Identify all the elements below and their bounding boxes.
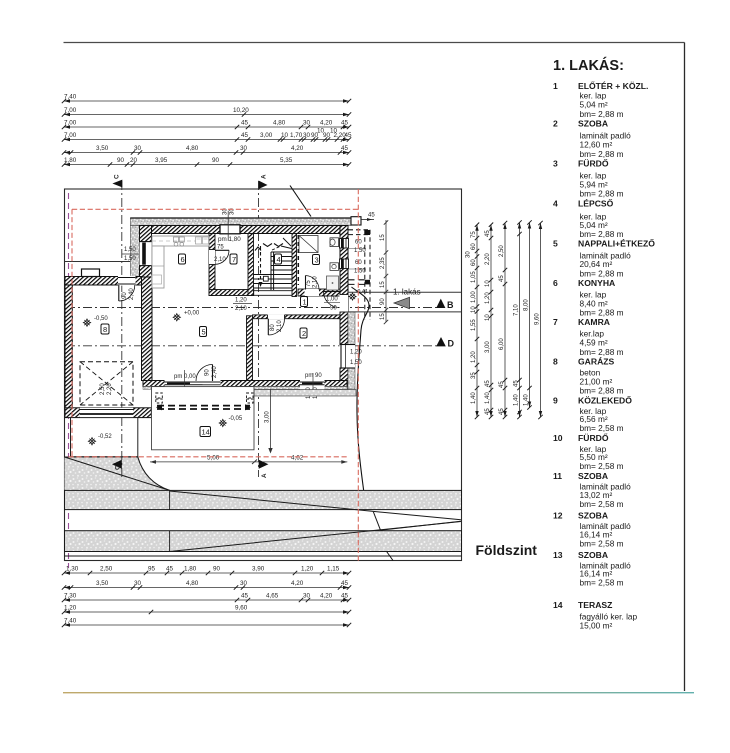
svg-text:2,10: 2,10 (214, 257, 226, 263)
svg-text:bm= 2,88 m: bm= 2,88 m (580, 109, 624, 119)
svg-text:60: 60 (471, 259, 477, 266)
svg-text:4,20: 4,20 (291, 580, 304, 587)
svg-text:1,40: 1,40 (514, 394, 520, 406)
svg-text:1,40: 1,40 (485, 392, 491, 404)
svg-text:9,60: 9,60 (235, 605, 248, 612)
svg-text:1,15: 1,15 (327, 566, 340, 573)
svg-text:4,65: 4,65 (266, 593, 279, 600)
svg-text:6: 6 (181, 255, 185, 264)
svg-text:8: 8 (553, 357, 558, 367)
svg-text:90: 90 (213, 566, 221, 573)
svg-text:90: 90 (330, 306, 337, 312)
svg-text:2,35: 2,35 (380, 257, 386, 269)
svg-text:A: A (261, 174, 268, 179)
svg-text:3: 3 (553, 159, 558, 169)
svg-text:bm= 2,88 m: bm= 2,88 m (580, 189, 624, 199)
svg-text:3,50: 3,50 (96, 145, 109, 152)
svg-text:6: 6 (553, 278, 558, 288)
svg-text:4: 4 (277, 255, 281, 264)
svg-text:2,40: 2,40 (129, 288, 135, 300)
svg-text:15,00 m²: 15,00 m² (580, 621, 613, 631)
svg-text:3: 3 (315, 256, 319, 265)
svg-text:1. LAKÁS:: 1. LAKÁS: (553, 57, 624, 74)
svg-text:45: 45 (485, 230, 491, 237)
svg-text:2,10: 2,10 (277, 320, 283, 332)
svg-text:-0,52: -0,52 (98, 434, 112, 440)
svg-text:9,60: 9,60 (535, 313, 541, 325)
svg-text:5: 5 (553, 239, 558, 249)
svg-text:C: C (115, 465, 122, 470)
svg-text:20: 20 (130, 157, 138, 164)
svg-text:3,95: 3,95 (155, 157, 168, 164)
svg-text:4,62: 4,62 (291, 455, 304, 462)
svg-text:60: 60 (471, 243, 477, 250)
svg-text:10: 10 (553, 433, 563, 443)
svg-text:LÉPCSŐ: LÉPCSŐ (578, 198, 614, 209)
svg-text:15: 15 (380, 313, 386, 320)
svg-text:4,80: 4,80 (186, 580, 199, 587)
svg-text:30: 30 (240, 580, 248, 587)
svg-text:bm= 2,88 m: bm= 2,88 m (580, 229, 624, 239)
svg-text:GARÁZS: GARÁZS (578, 357, 615, 367)
svg-text:2,20: 2,20 (485, 253, 491, 265)
svg-text:90: 90 (380, 298, 386, 305)
svg-text:2,10: 2,10 (235, 306, 247, 312)
svg-text:FÜRDŐ: FÜRDŐ (578, 432, 609, 443)
svg-text:KAMRA: KAMRA (578, 317, 610, 327)
svg-text:3,00: 3,00 (260, 132, 273, 139)
svg-text:11: 11 (553, 471, 562, 481)
svg-text:95: 95 (148, 566, 156, 573)
svg-text:KONYHA: KONYHA (578, 278, 615, 288)
svg-text:C: C (114, 174, 121, 179)
svg-text:1,00: 1,00 (326, 297, 338, 303)
svg-text:2: 2 (553, 119, 558, 129)
svg-text:90: 90 (205, 369, 211, 376)
svg-text:90: 90 (212, 157, 220, 164)
svg-text:bm= 2,58 m: bm= 2,58 m (580, 423, 624, 433)
svg-text:9: 9 (553, 396, 558, 406)
svg-text:12: 12 (553, 511, 563, 521)
svg-text:4: 4 (553, 199, 558, 209)
svg-text:bm= 2,58 m: bm= 2,58 m (580, 461, 624, 471)
svg-text:-0,05: -0,05 (229, 416, 243, 422)
svg-text:KÖZLEKEDŐ: KÖZLEKEDŐ (578, 395, 632, 406)
svg-text:5,35: 5,35 (280, 157, 293, 164)
svg-text:45: 45 (499, 275, 505, 282)
svg-text:4,20: 4,20 (320, 120, 333, 127)
svg-text:bm= 2,88 m: bm= 2,88 m (580, 386, 624, 396)
svg-text:A: A (261, 473, 268, 478)
svg-text:SZOBA: SZOBA (578, 119, 608, 129)
svg-text:30: 30 (240, 145, 248, 152)
svg-text:3,50: 3,50 (96, 580, 109, 587)
svg-text:TERASZ: TERASZ (578, 600, 612, 610)
svg-text:1: 1 (553, 81, 558, 91)
svg-text:80: 80 (270, 324, 276, 331)
svg-text:pm 0,00: pm 0,00 (174, 374, 196, 380)
svg-text:8,00: 8,00 (524, 299, 530, 311)
svg-text:ELŐTÉR + KÖZL.: ELŐTÉR + KÖZL. (578, 80, 648, 91)
svg-text:1,20: 1,20 (350, 350, 362, 356)
svg-text:45: 45 (499, 381, 505, 388)
svg-text:7: 7 (553, 317, 558, 327)
svg-text:14: 14 (553, 600, 563, 610)
svg-text:1,40: 1,40 (471, 392, 477, 404)
svg-text:8: 8 (103, 325, 107, 334)
svg-text:15: 15 (380, 234, 386, 241)
svg-text:1,55: 1,55 (471, 319, 477, 331)
svg-text:30: 30 (466, 251, 472, 258)
svg-text:1,20: 1,20 (235, 298, 247, 304)
svg-text:15: 15 (380, 281, 386, 288)
svg-text:1,00: 1,00 (471, 291, 477, 303)
svg-text:3,00: 3,00 (485, 341, 491, 353)
svg-text:5,00: 5,00 (207, 455, 220, 462)
svg-text:3,90: 3,90 (252, 566, 265, 573)
svg-text:pm 90: pm 90 (305, 373, 322, 379)
svg-text:6,00: 6,00 (499, 338, 505, 350)
svg-text:2,10: 2,10 (313, 276, 319, 288)
svg-text:20,64 m²: 20,64 m² (580, 259, 613, 269)
svg-text:D: D (448, 339, 455, 349)
svg-text:90: 90 (117, 157, 125, 164)
svg-text:2,20: 2,20 (107, 383, 113, 395)
svg-text:1,05: 1,05 (471, 271, 477, 283)
svg-text:45: 45 (241, 120, 249, 127)
svg-text:45: 45 (166, 566, 174, 573)
svg-text:7,10: 7,10 (514, 304, 520, 316)
svg-text:14: 14 (202, 428, 210, 437)
svg-text:13: 13 (553, 550, 563, 560)
svg-text:30: 30 (303, 132, 311, 139)
svg-text:1,50: 1,50 (350, 360, 362, 366)
svg-text:2,50: 2,50 (100, 566, 113, 573)
svg-text:75: 75 (471, 231, 477, 238)
svg-text:B: B (447, 300, 454, 310)
svg-text:bm= 2,88 m: bm= 2,88 m (580, 347, 624, 357)
svg-text:1,80: 1,80 (184, 566, 197, 573)
svg-text:bm= 2,88 m: bm= 2,88 m (580, 308, 624, 318)
svg-text:bm= 2,88 m: bm= 2,88 m (580, 149, 624, 159)
svg-text:pm 1,80: pm 1,80 (218, 236, 241, 243)
svg-text:12,60 m²: 12,60 m² (580, 140, 613, 150)
svg-text:NAPPALI+ÉTKEZŐ: NAPPALI+ÉTKEZŐ (578, 238, 655, 249)
svg-text:75: 75 (306, 280, 312, 287)
svg-text:2,50: 2,50 (499, 245, 505, 257)
svg-text:bm= 2,58 m: bm= 2,58 m (580, 578, 624, 588)
svg-text:Földszint: Földszint (476, 542, 538, 558)
svg-text:FÜRDŐ: FÜRDŐ (578, 158, 609, 169)
svg-text:1,30: 1,30 (66, 566, 79, 573)
svg-text:75: 75 (217, 245, 224, 251)
svg-text:7: 7 (232, 255, 236, 264)
svg-text:5: 5 (202, 328, 206, 337)
svg-text:1. lakás: 1. lakás (393, 288, 421, 297)
svg-text:bm= 2,88 m: bm= 2,88 m (580, 269, 624, 279)
svg-text:4,20: 4,20 (320, 593, 333, 600)
svg-text:1,20: 1,20 (301, 566, 314, 573)
svg-text:45: 45 (368, 213, 375, 219)
svg-text:4,20: 4,20 (291, 145, 304, 152)
svg-text:+0,00: +0,00 (184, 311, 200, 317)
svg-text:2: 2 (302, 329, 306, 338)
svg-text:10,20: 10,20 (233, 107, 249, 114)
svg-text:4,80: 4,80 (186, 145, 199, 152)
svg-text:45: 45 (241, 593, 249, 600)
svg-text:SZOBA: SZOBA (578, 511, 608, 521)
svg-text:bm= 2,58 m: bm= 2,58 m (580, 539, 624, 549)
svg-text:3,00: 3,00 (265, 411, 271, 423)
svg-text:1,70: 1,70 (290, 132, 303, 139)
svg-text:90: 90 (122, 292, 128, 299)
svg-text:45: 45 (241, 132, 249, 139)
svg-text:1,20: 1,20 (471, 351, 477, 363)
svg-text:2,40: 2,40 (212, 366, 218, 378)
svg-text:-0,50: -0,50 (94, 316, 108, 322)
svg-text:SZOBA: SZOBA (578, 550, 608, 560)
svg-text:2,50: 2,50 (100, 383, 106, 395)
svg-text:1,50: 1,50 (124, 247, 136, 253)
svg-text:1: 1 (303, 298, 307, 307)
svg-text:SZOBA: SZOBA (578, 471, 608, 481)
svg-text:bm= 2,58 m: bm= 2,58 m (580, 499, 624, 509)
svg-text:4,59 m²: 4,59 m² (580, 338, 608, 348)
svg-text:5,04 m²: 5,04 m² (580, 100, 608, 110)
svg-text:4,80: 4,80 (273, 120, 286, 127)
